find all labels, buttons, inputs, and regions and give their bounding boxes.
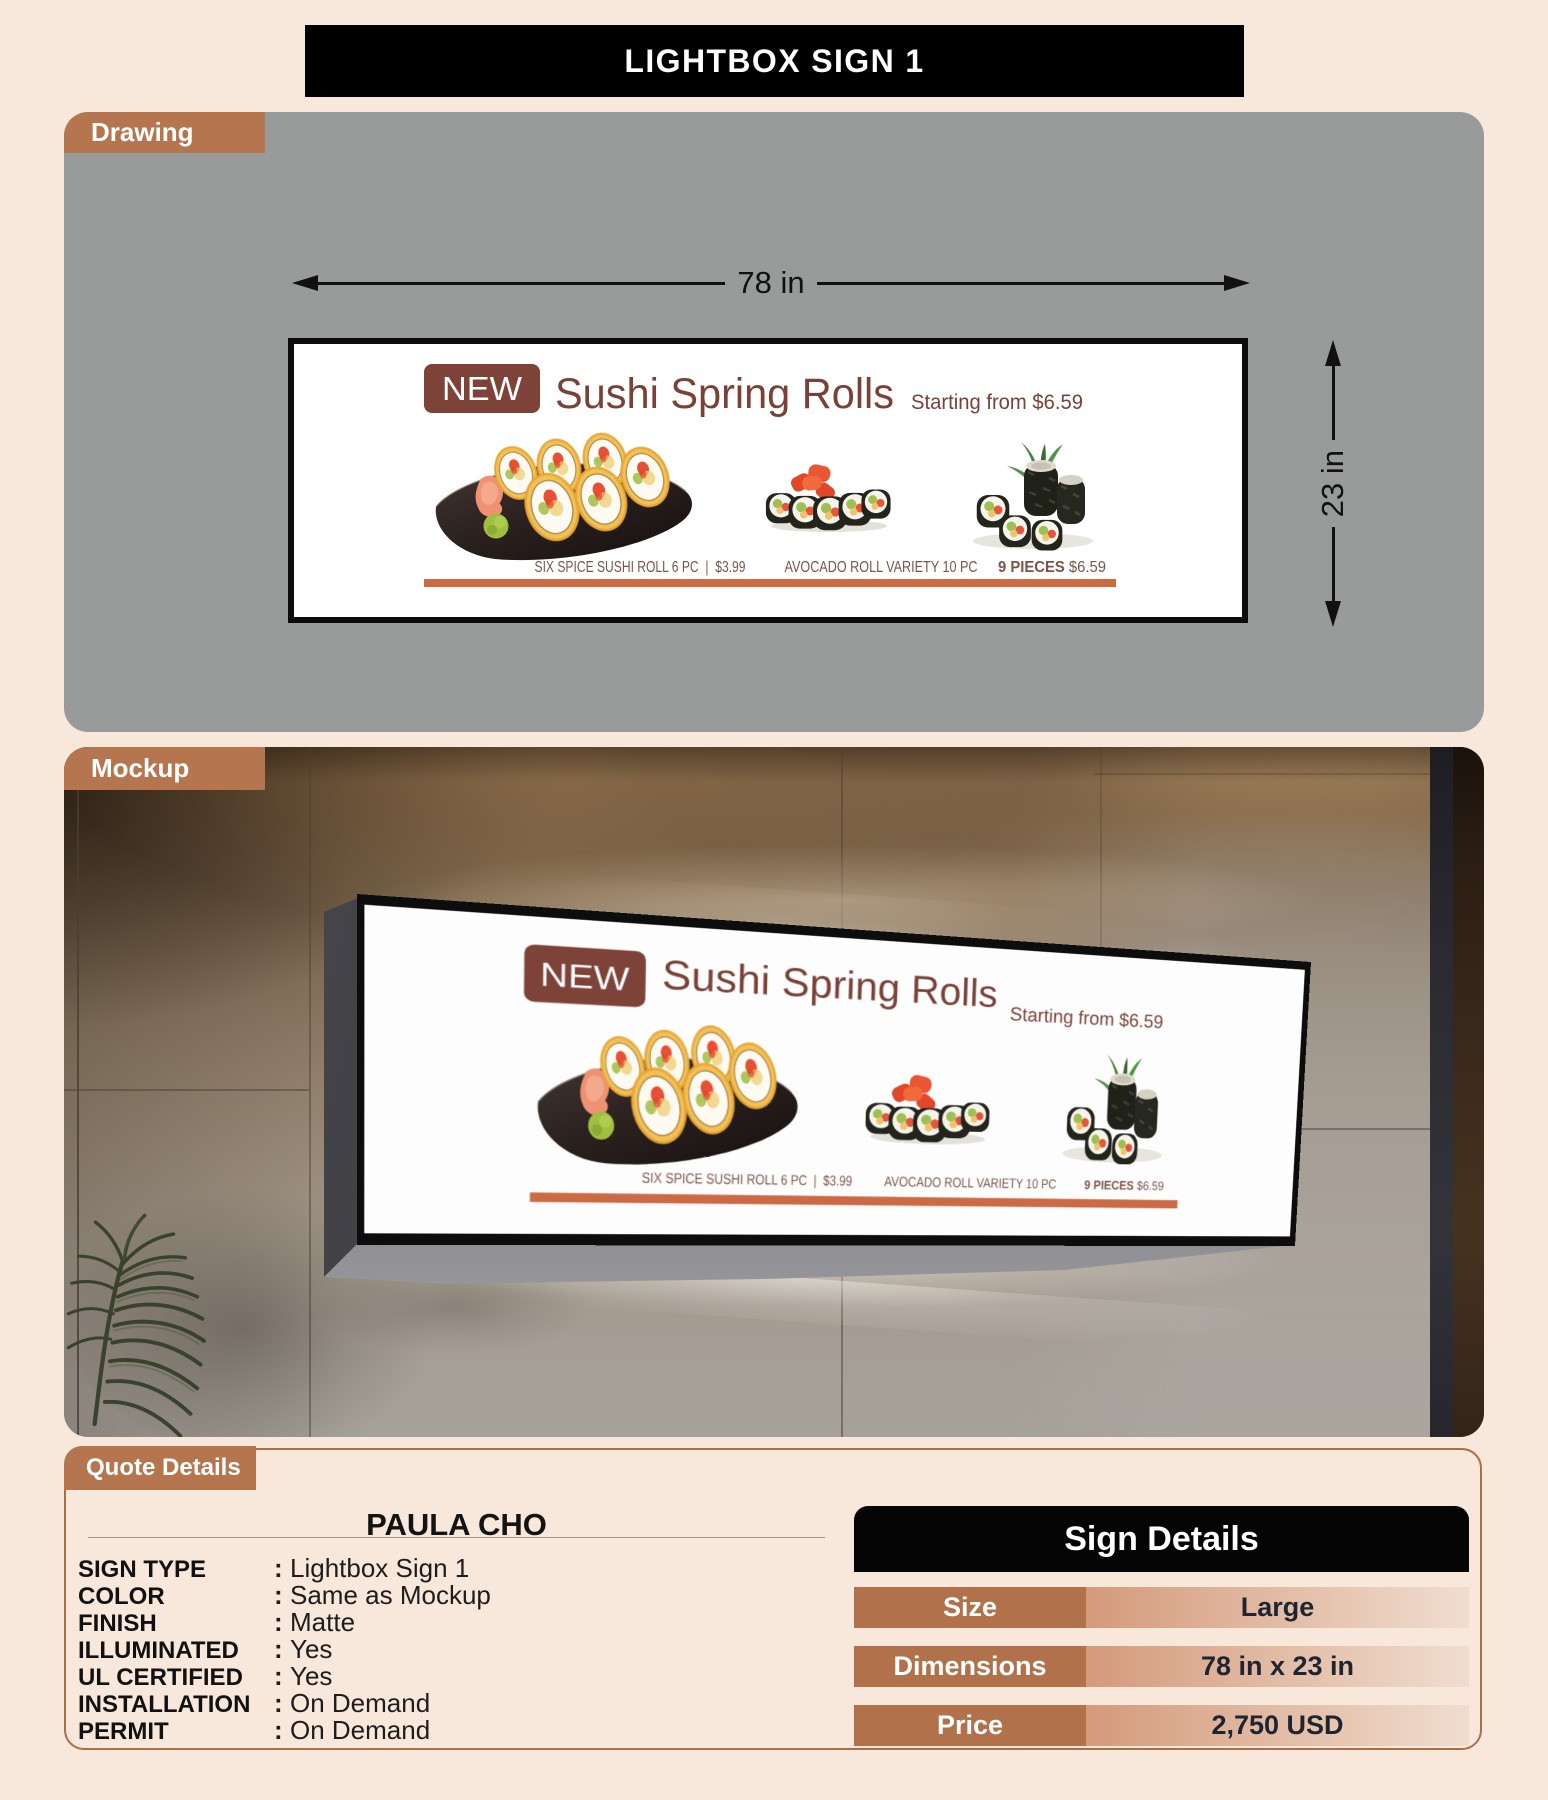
svg-text:Starting from $6.59: Starting from $6.59	[1009, 1004, 1163, 1033]
svg-text:SIX SPICE SUSHI ROLL 6 PC |: SIX SPICE SUSHI ROLL 6 PC | $3.99	[642, 1170, 853, 1189]
svg-text:Sushi Spring Rolls: Sushi Spring Rolls	[555, 370, 894, 418]
svg-text:Sushi Spring Rolls: Sushi Spring Rolls	[662, 951, 999, 1016]
svg-text:NEW: NEW	[442, 370, 523, 407]
svg-text:AVOCADO ROLL VARIETY 10 PC: AVOCADO ROLL VARIETY 10 PC	[884, 1174, 1057, 1192]
svg-text:9 PIECES $6.59: 9 PIECES $6.59	[1084, 1178, 1164, 1193]
svg-text:AVOCADO ROLL VARIETY 10 PC: AVOCADO ROLL VARIETY 10 PC	[785, 559, 978, 576]
svg-text:NEW: NEW	[540, 956, 630, 999]
svg-text:Starting from $6.59: Starting from $6.59	[911, 391, 1083, 414]
svg-text:SIX SPICE SUSHI ROLL 6 PC |: SIX SPICE SUSHI ROLL 6 PC | $3.99	[535, 559, 746, 576]
svg-text:9 PIECES $6.59: 9 PIECES $6.59	[998, 559, 1106, 576]
